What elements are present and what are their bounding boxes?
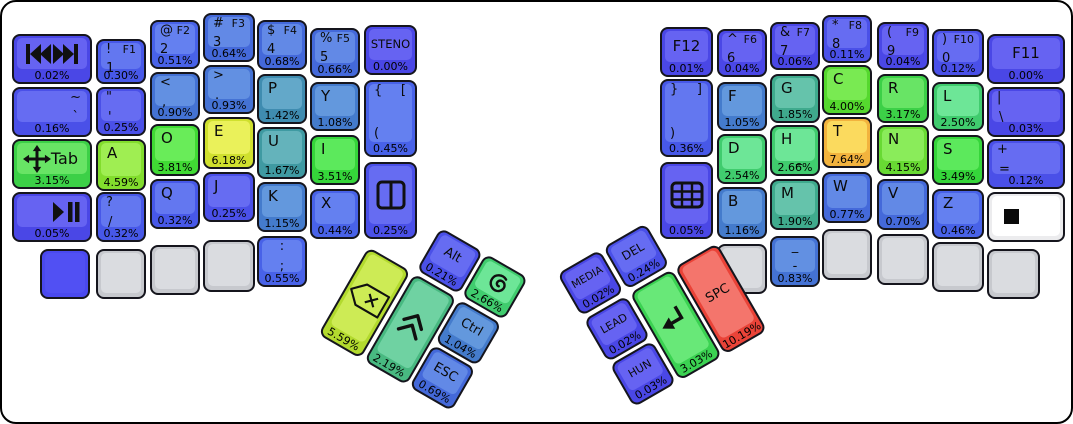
key-blank-gray-r4-cap (937, 246, 979, 286)
usage-percent: 4.15% (879, 161, 927, 175)
usage-percent: 0.51% (152, 54, 198, 68)
usage-percent: 0.55% (259, 272, 305, 286)
key-label: G (781, 80, 793, 97)
base-symbol: ] (697, 83, 702, 97)
key-label: Q (161, 185, 173, 202)
key-label: T (833, 123, 842, 140)
key-underscore-dash: _-0.83% (770, 236, 820, 287)
key-tilde-cap: ~` (17, 91, 87, 122)
key-s: S3.49% (932, 135, 984, 185)
key-tab: Tab3.15% (12, 139, 92, 189)
usage-percent: 0.25% (366, 224, 415, 238)
key-layer-blue-cap (45, 253, 85, 293)
shifted-symbol: + (997, 143, 1008, 157)
key-label: D (728, 140, 740, 157)
fn-label: F7 (797, 27, 810, 39)
key-left-bracket: {[(0.45% (364, 80, 417, 157)
usage-percent: 0.68% (259, 55, 305, 69)
key-quote: "'0.25% (96, 87, 146, 136)
shifted-symbol: $ (267, 24, 275, 38)
fn-label: F8 (849, 20, 862, 32)
key-y-cap: Y (315, 86, 355, 116)
usage-percent: 2.66% (772, 161, 818, 175)
key-f6-6-cap: ^F66 (722, 33, 762, 62)
key-f11-cap: F11 (992, 38, 1060, 69)
key-f8-8-cap: *F88 (827, 19, 867, 48)
key-grid-layer: 0.05% (660, 162, 713, 239)
key-q: Q0.32% (150, 179, 200, 229)
key-steno-cap: STENO (369, 29, 412, 60)
key-label: STENO (369, 38, 412, 51)
usage-percent: 0.04% (719, 62, 765, 76)
key-play-pause-cap (17, 196, 87, 227)
key-label: M (781, 185, 794, 202)
key-right-brace-cap: }]) (665, 83, 708, 142)
usage-percent: 2.54% (719, 169, 765, 183)
key-f9-9-cap: (F99 (882, 26, 924, 55)
key-j-cap: J (208, 176, 250, 207)
key-n: N4.15% (877, 125, 929, 176)
key-p: P1.42% (257, 74, 307, 124)
key-plus-equals-cap: += (992, 143, 1060, 174)
key-label: N (888, 131, 899, 148)
usage-percent: 0.06% (772, 55, 818, 69)
key-n-cap: N (882, 129, 924, 161)
key-d: D2.54% (717, 134, 767, 184)
key-period: >.0.93% (203, 65, 255, 114)
key-label: J (214, 178, 218, 195)
usage-percent: 0.12% (934, 62, 982, 76)
prev-next-track-icon (17, 38, 87, 69)
key-label: R (888, 80, 898, 97)
key-quote-cap: "' (101, 91, 141, 121)
extra-symbol: ) (670, 127, 675, 141)
key-a: A4.59% (96, 139, 146, 191)
usage-percent: 0.90% (152, 106, 198, 120)
key-f7-7: &F770.06% (770, 22, 820, 70)
usage-percent: 1.90% (772, 215, 818, 229)
key-r: R3.17% (877, 74, 929, 123)
key-f: F1.05% (717, 82, 767, 131)
key-f12: F120.01% (660, 27, 713, 77)
usage-percent: 0.36% (662, 142, 711, 156)
key-left-bracket-cap: {[( (369, 84, 412, 142)
key-blank-gray-l2-cap (155, 249, 195, 289)
usage-percent: 0.02% (14, 69, 90, 83)
fn-label: F1 (123, 44, 136, 56)
key-s-cap: S (937, 139, 979, 170)
key-right-brace: }])0.36% (660, 79, 713, 157)
key-label: H (781, 131, 792, 148)
key-steno: STENO0.00% (364, 25, 417, 75)
shifted-symbol: % (320, 32, 332, 46)
key-pipe-backslash: |\0.03% (987, 87, 1065, 137)
key-label: U (268, 133, 279, 150)
usage-percent: 7.64% (824, 153, 870, 167)
key-blank-gray-r3 (877, 234, 929, 285)
usage-percent: 3.17% (879, 108, 927, 122)
usage-percent: 1.05% (719, 116, 765, 130)
shifted-symbol: { (374, 84, 382, 98)
shifted-symbol: * (832, 19, 839, 33)
shifted-symbol: | (997, 91, 1001, 105)
key-blank-gray-l3 (203, 240, 255, 292)
fn-label: F5 (337, 33, 350, 45)
key-label: P (268, 80, 277, 97)
black-square-icon (992, 196, 1060, 236)
key-f9-9: (F990.04% (877, 22, 929, 70)
key-f2-2: @F220.51% (150, 20, 200, 69)
key-media-prev-next: 0.02% (12, 34, 92, 84)
key-label: O (161, 130, 173, 147)
fn-label: F3 (232, 18, 245, 30)
key-w: W0.77% (822, 172, 872, 223)
usage-percent: 1.15% (259, 217, 305, 231)
usage-percent: 0.05% (14, 227, 90, 241)
usage-percent: 0.25% (98, 121, 144, 135)
fn-label: F9 (906, 27, 919, 39)
key-blank-gray-l2 (150, 245, 200, 295)
key-a-cap: A (101, 143, 141, 176)
extra-symbol: ( (374, 127, 379, 141)
key-y: Y1.08% (310, 82, 360, 131)
shifted-symbol: ) (942, 33, 947, 47)
key-label: SPC (697, 278, 738, 310)
key-blank-gray-r5 (987, 249, 1040, 299)
key-label: Y (321, 88, 330, 105)
usage-percent: 0.25% (205, 207, 253, 221)
key-f-cap: F (722, 86, 762, 116)
key-plus-equals: +=0.12% (987, 139, 1065, 189)
key-g: G1.85% (770, 74, 820, 123)
usage-percent: 0.83% (772, 272, 818, 286)
usage-percent: 3.49% (934, 170, 982, 184)
fn-label: F10 (954, 34, 974, 46)
usage-percent: 0.03% (989, 122, 1063, 136)
key-x: X0.44% (310, 189, 360, 239)
key-c-cap: C (827, 69, 867, 100)
key-g-cap: G (775, 78, 815, 108)
key-u: U_1.67% (257, 127, 307, 179)
key-l-cap: L (937, 86, 979, 116)
usage-percent: 0.12% (989, 174, 1063, 188)
fn-label: F6 (744, 34, 757, 46)
usage-percent: 3.51% (312, 170, 358, 184)
usage-percent: 3.81% (152, 161, 198, 175)
key-layer-white-cap (992, 196, 1060, 236)
usage-percent: 3.15% (14, 174, 90, 188)
key-f7-7-cap: &F77 (775, 26, 815, 55)
shifted-symbol: ( (887, 26, 892, 40)
key-v-cap: V (882, 183, 924, 215)
key-k: K1.15% (257, 182, 307, 232)
key-play-pause: 0.05% (12, 192, 92, 242)
key-d-cap: D (722, 138, 762, 169)
key-e: E6.18% (203, 117, 255, 169)
usage-percent: 4.00% (824, 100, 870, 114)
key-blank-gray-r4 (932, 242, 984, 292)
key-label: F12 (665, 37, 708, 54)
key-blank-gray-r2 (822, 229, 872, 280)
usage-percent: 0.00% (989, 69, 1063, 83)
key-f3-3: #F330.64% (203, 13, 255, 62)
usage-percent: 0.16% (14, 122, 90, 136)
shifted-symbol: ^ (727, 33, 738, 47)
key-label: I (321, 141, 325, 158)
key-semicolon: :;0.55% (257, 236, 307, 287)
base-symbol: [ (401, 84, 406, 98)
usage-percent: 0.44% (312, 224, 358, 238)
key-label: F11 (992, 44, 1060, 61)
key-media-prev-next-cap (17, 38, 87, 69)
key-f10-0: )F1000.12% (932, 29, 984, 77)
key-k-cap: K (262, 186, 302, 217)
key-semicolon-cap: :; (262, 240, 302, 272)
keyboard-heatmap: 0.02%~`0.16%Tab3.15%0.05%!F110.30%"'0.25… (0, 0, 1073, 424)
usage-percent: 0.05% (662, 224, 711, 238)
shifted-symbol: ? (106, 196, 113, 210)
shifted-symbol: < (160, 76, 171, 90)
key-f1-1-cap: !F11 (101, 43, 141, 69)
shifted-symbol: : (262, 240, 302, 254)
key-blank-gray-l3-cap (208, 244, 250, 286)
key-o: O3.81% (150, 124, 200, 176)
key-label: C (833, 71, 843, 88)
usage-percent: 0.04% (879, 55, 927, 69)
key-l: L2.50% (932, 82, 984, 131)
usage-percent: 0.46% (934, 224, 982, 238)
shifted-symbol: ! (106, 43, 111, 57)
key-blank-gray-l1 (96, 249, 146, 299)
key-m-cap: M (775, 183, 815, 215)
usage-percent: 0.32% (98, 227, 144, 241)
usage-percent: 0.66% (312, 63, 358, 77)
key-period-cap: >. (208, 69, 250, 99)
key-window-split-cap (369, 166, 412, 224)
usage-percent: 2.50% (934, 116, 982, 130)
key-label: Z (943, 195, 953, 212)
key-f4-4-cap: $F44 (262, 24, 302, 55)
shifted-symbol: _ (775, 240, 815, 254)
key-x-cap: X (315, 193, 355, 224)
usage-percent: 0.93% (205, 99, 253, 113)
key-f4-4: $F440.68% (257, 20, 307, 70)
key-label: Tab (51, 150, 78, 168)
usage-percent: 0.45% (366, 142, 415, 156)
key-window-split: 0.25% (364, 162, 417, 239)
usage-percent: 1.08% (312, 116, 358, 130)
key-blank-gray-r3-cap (882, 238, 924, 279)
key-label: S (943, 141, 953, 158)
key-u-cap: U_ (262, 131, 302, 164)
key-layer-blue (40, 249, 90, 299)
key-f10-0-cap: )F100 (937, 33, 979, 62)
key-tilde: ~`0.16% (12, 87, 92, 137)
key-f5-5: %F550.66% (310, 28, 360, 78)
play-pause-icon (17, 196, 87, 227)
key-t: T7.64% (822, 117, 872, 168)
usage-percent: 0.01% (662, 62, 711, 76)
key-label: B (728, 193, 738, 210)
key-j: J0.25% (203, 172, 255, 222)
key-f3-3-cap: #F33 (208, 17, 250, 47)
key-p-cap: P (262, 78, 302, 109)
key-underscore-dash-cap: _- (775, 240, 815, 272)
shifted-symbol: @ (160, 24, 173, 38)
key-layer-white (987, 192, 1065, 242)
key-comma: <,0.90% (150, 72, 200, 121)
key-f1-1: !F110.30% (96, 39, 146, 84)
usage-percent: 1.67% (259, 164, 305, 178)
window-split-icon (369, 166, 412, 224)
fn-label: F4 (284, 25, 297, 37)
key-f12-cap: F12 (665, 31, 708, 62)
key-i-cap: I (315, 139, 355, 170)
key-label: A (107, 145, 117, 162)
key-o-cap: O (155, 128, 195, 161)
key-f8-8: *F880.11% (822, 15, 872, 63)
key-b-cap: B (722, 191, 762, 224)
key-f6-6: ^F660.04% (717, 29, 767, 77)
key-m: M1.90% (770, 179, 820, 230)
shifted-symbol: & (780, 26, 790, 40)
usage-percent: 0.00% (366, 60, 415, 74)
key-blank-gray-r2-cap (827, 233, 867, 274)
usage-percent: 4.59% (98, 176, 144, 190)
key-h: H_2.66% (770, 125, 820, 176)
key-blank-gray-l1-cap (101, 253, 141, 293)
key-grid-layer-cap (665, 166, 708, 224)
key-label: E (214, 123, 223, 140)
fn-label: F2 (177, 25, 190, 37)
usage-percent: 0.77% (824, 208, 870, 222)
key-z-cap: Z (937, 193, 979, 224)
key-t-cap: T (827, 121, 867, 153)
key-h-cap: H_ (775, 129, 815, 161)
key-label: K (268, 188, 278, 205)
usage-percent: 1.42% (259, 109, 305, 123)
shifted-symbol: } (670, 83, 678, 97)
key-question-slash-cap: ?/ (101, 196, 141, 227)
key-v: V0.70% (877, 179, 929, 230)
key-label: L (943, 88, 951, 105)
usage-percent: 0.11% (824, 48, 870, 62)
key-label: X (321, 195, 331, 212)
key-blank-gray-r5-cap (992, 253, 1035, 293)
usage-percent: 0.32% (152, 214, 198, 228)
key-i: I3.51% (310, 135, 360, 185)
key-tab-cap: Tab (17, 143, 87, 174)
key-z: Z0.46% (932, 189, 984, 239)
key-label: F (728, 88, 737, 105)
key-comma-cap: <, (155, 76, 195, 106)
key-question-slash: ?/0.32% (96, 192, 146, 242)
key-f5-5-cap: %F55 (315, 32, 355, 63)
usage-percent: 1.16% (719, 224, 765, 238)
key-c: C4.00% (822, 65, 872, 115)
key-f11: F110.00% (987, 34, 1065, 84)
shifted-symbol: ~ (70, 91, 81, 105)
grid-table-icon (665, 166, 708, 224)
usage-percent: 0.30% (98, 69, 144, 83)
usage-percent: 0.64% (205, 47, 253, 61)
key-b: B1.16% (717, 187, 767, 239)
usage-percent: 6.18% (205, 154, 253, 168)
shifted-symbol: > (213, 69, 224, 83)
usage-percent: 1.85% (772, 108, 818, 122)
key-e-cap: E (208, 121, 250, 154)
shifted-symbol: " (106, 91, 112, 105)
key-r-cap: R (882, 78, 924, 108)
key-label: W (833, 178, 848, 195)
usage-percent: 0.70% (879, 215, 927, 229)
key-label: V (888, 185, 898, 202)
key-w-cap: W (827, 176, 867, 208)
key-q-cap: Q (155, 183, 195, 214)
shifted-symbol: # (213, 17, 224, 31)
key-f2-2-cap: @F22 (155, 24, 195, 54)
key-pipe-backslash-cap: |\ (992, 91, 1060, 122)
